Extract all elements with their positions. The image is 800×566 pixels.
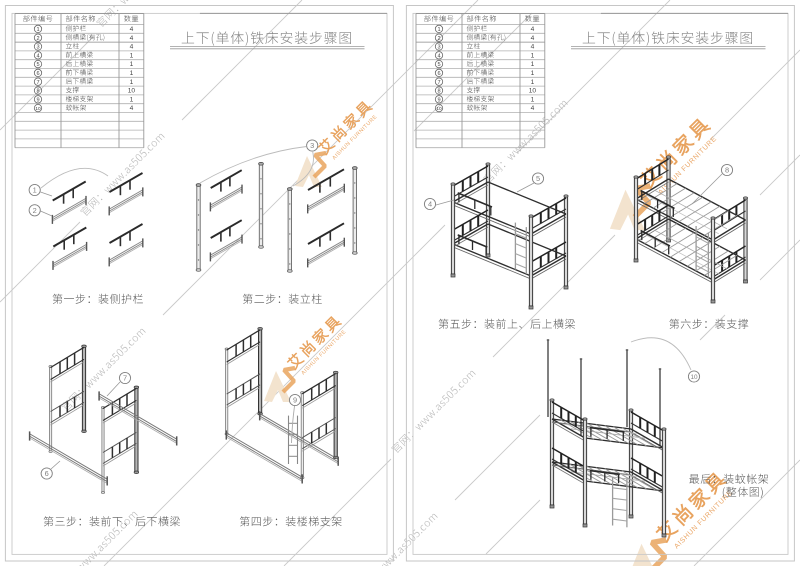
svg-text:4: 4 — [428, 200, 432, 209]
svg-text:1: 1 — [33, 186, 37, 195]
svg-text:5: 5 — [536, 174, 540, 183]
svg-text:9: 9 — [293, 396, 297, 405]
svg-text:7: 7 — [123, 374, 127, 383]
svg-text:10: 10 — [690, 374, 698, 381]
svg-text:6: 6 — [45, 469, 49, 478]
svg-text:2: 2 — [33, 206, 37, 215]
svg-text:3: 3 — [310, 141, 314, 150]
svg-text:8: 8 — [725, 166, 729, 175]
